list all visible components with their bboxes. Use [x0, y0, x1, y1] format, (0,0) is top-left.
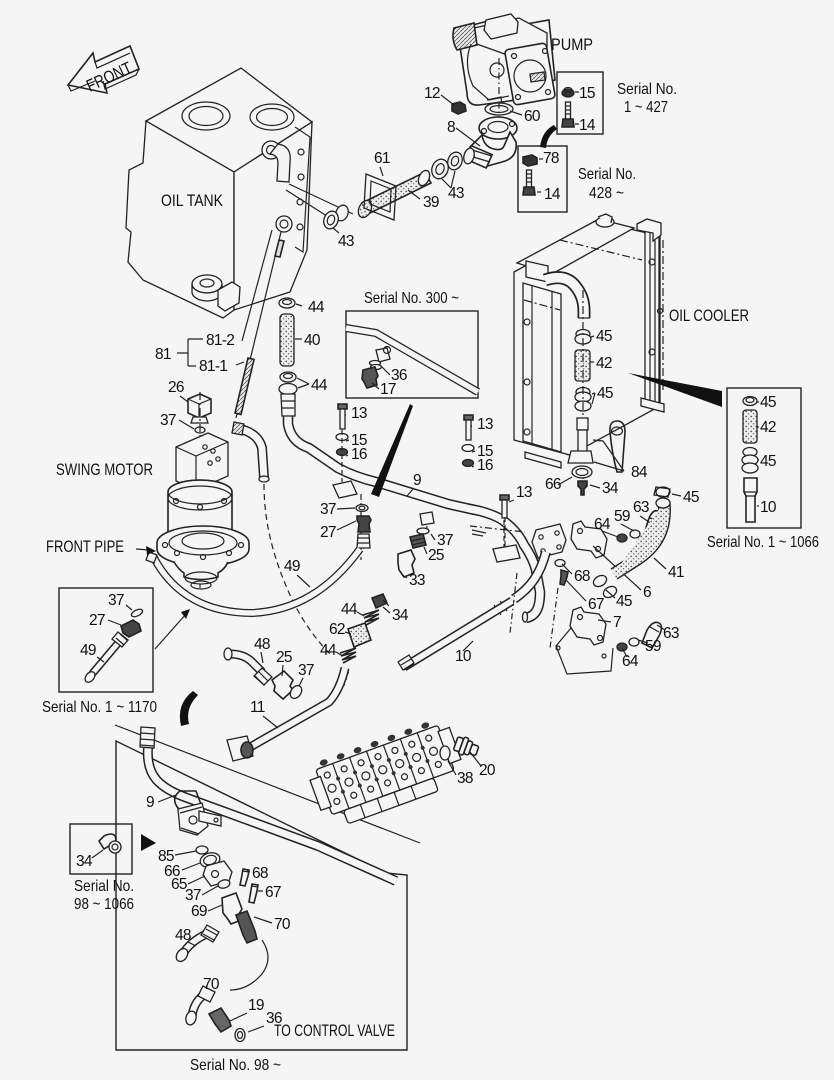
- svg-text:11: 11: [250, 699, 265, 716]
- svg-text:84: 84: [631, 464, 648, 481]
- svg-text:63: 63: [633, 499, 649, 516]
- svg-text:Serial No.: Serial No.: [578, 166, 636, 183]
- svg-text:44: 44: [320, 642, 337, 659]
- svg-text:37: 37: [185, 887, 201, 904]
- svg-text:34: 34: [76, 853, 93, 870]
- svg-text:33: 33: [409, 572, 425, 589]
- svg-text:14: 14: [544, 186, 561, 203]
- svg-text:68: 68: [574, 568, 590, 585]
- svg-text:12: 12: [424, 85, 440, 102]
- svg-text:67: 67: [588, 596, 604, 613]
- svg-text:49: 49: [80, 642, 96, 659]
- svg-text:13: 13: [477, 416, 493, 433]
- svg-text:PUMP: PUMP: [551, 35, 593, 54]
- svg-text:41: 41: [668, 564, 684, 581]
- svg-text:19: 19: [248, 997, 264, 1014]
- svg-text:13: 13: [351, 405, 367, 422]
- svg-text:62: 62: [329, 621, 345, 638]
- svg-text:61: 61: [374, 150, 390, 167]
- svg-text:OIL TANK: OIL TANK: [161, 191, 224, 210]
- svg-text:39: 39: [423, 194, 439, 211]
- svg-text:44: 44: [308, 299, 325, 316]
- svg-text:27: 27: [89, 612, 105, 629]
- svg-text:78: 78: [543, 150, 559, 167]
- svg-text:45: 45: [760, 394, 776, 411]
- svg-text:27: 27: [320, 524, 336, 541]
- svg-text:14: 14: [579, 117, 596, 134]
- svg-text:45: 45: [596, 328, 612, 345]
- svg-text:TO CONTROL VALVE: TO CONTROL VALVE: [274, 1021, 395, 1040]
- svg-text:42: 42: [596, 355, 612, 372]
- svg-text:44: 44: [341, 601, 358, 618]
- svg-text:15: 15: [579, 85, 595, 102]
- svg-text:6: 6: [643, 584, 651, 601]
- svg-text:20: 20: [479, 762, 496, 779]
- svg-text:Serial No. 98 ~: Serial No. 98 ~: [190, 1057, 281, 1074]
- svg-text:Serial No. 300 ~: Serial No. 300 ~: [364, 290, 459, 307]
- svg-text:428 ~: 428 ~: [589, 185, 624, 202]
- svg-text:37: 37: [160, 412, 176, 429]
- svg-text:98 ~ 1066: 98 ~ 1066: [74, 896, 134, 913]
- svg-text:34: 34: [602, 480, 619, 497]
- svg-text:70: 70: [274, 916, 291, 933]
- svg-text:16: 16: [477, 457, 493, 474]
- svg-text:81-2: 81-2: [206, 332, 234, 349]
- svg-text:10: 10: [760, 499, 777, 516]
- svg-text:48: 48: [175, 927, 191, 944]
- svg-text:Serial No.: Serial No.: [617, 81, 677, 98]
- svg-text:13: 13: [516, 484, 532, 501]
- svg-text:43: 43: [338, 233, 354, 250]
- svg-text:FRONT PIPE: FRONT PIPE: [46, 537, 124, 556]
- svg-text:25: 25: [428, 547, 444, 564]
- svg-text:44: 44: [311, 377, 328, 394]
- svg-text:59: 59: [645, 638, 661, 655]
- svg-text:45: 45: [760, 453, 776, 470]
- svg-text:68: 68: [252, 865, 268, 882]
- svg-text:81: 81: [155, 346, 171, 363]
- svg-text:38: 38: [457, 770, 473, 787]
- svg-text:1 ~ 427: 1 ~ 427: [624, 99, 668, 116]
- svg-text:45: 45: [616, 593, 632, 610]
- svg-text:37: 37: [320, 501, 336, 518]
- svg-text:59: 59: [614, 508, 630, 525]
- svg-text:49: 49: [284, 558, 300, 575]
- svg-text:9: 9: [146, 794, 154, 811]
- svg-text:37: 37: [298, 662, 314, 679]
- svg-text:81-1: 81-1: [199, 358, 227, 375]
- svg-text:34: 34: [392, 607, 409, 624]
- svg-text:8: 8: [447, 119, 455, 136]
- svg-text:45: 45: [597, 385, 613, 402]
- svg-text:OIL COOLER: OIL COOLER: [669, 306, 749, 325]
- svg-text:Serial No. 1 ~ 1170: Serial No. 1 ~ 1170: [42, 699, 157, 716]
- svg-text:40: 40: [304, 332, 321, 349]
- svg-text:63: 63: [663, 625, 679, 642]
- svg-text:9: 9: [413, 472, 421, 489]
- svg-text:48: 48: [254, 636, 270, 653]
- svg-text:64: 64: [622, 653, 639, 670]
- svg-text:67: 67: [265, 884, 281, 901]
- svg-text:42: 42: [760, 419, 776, 436]
- svg-text:Serial No.: Serial No.: [74, 878, 134, 895]
- svg-text:64: 64: [594, 516, 611, 533]
- svg-text:69: 69: [191, 903, 207, 920]
- svg-text:60: 60: [524, 108, 541, 125]
- svg-text:26: 26: [168, 379, 184, 396]
- svg-text:16: 16: [351, 446, 367, 463]
- svg-text:37: 37: [108, 592, 124, 609]
- svg-text:25: 25: [276, 649, 292, 666]
- svg-text:45: 45: [683, 489, 699, 506]
- svg-text:SWING MOTOR: SWING MOTOR: [56, 460, 153, 479]
- svg-text:17: 17: [380, 381, 396, 398]
- svg-text:70: 70: [203, 976, 220, 993]
- svg-text:7: 7: [613, 614, 621, 631]
- svg-text:Serial No. 1 ~ 1066: Serial No. 1 ~ 1066: [707, 534, 819, 551]
